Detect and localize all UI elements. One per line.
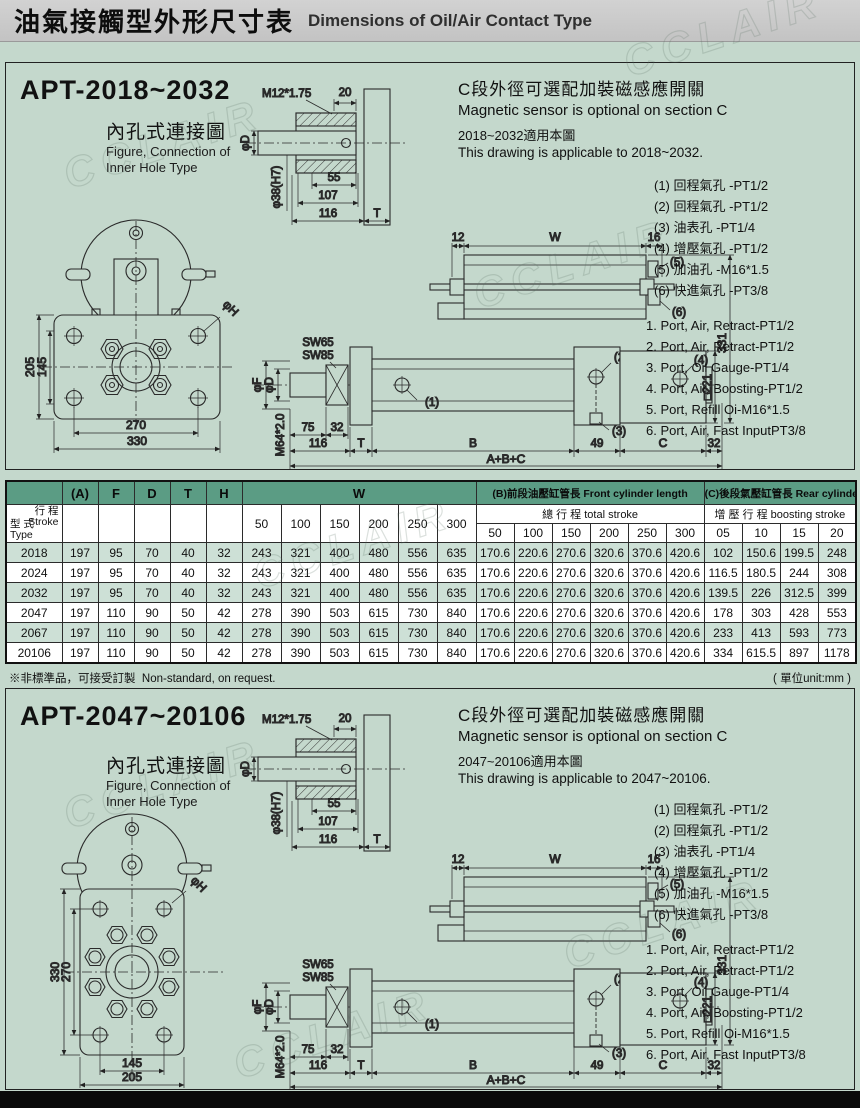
row-value-cell: 197 [62, 603, 98, 623]
model-title: APT-2047~20106 [20, 701, 246, 732]
corner-cell: 行 程Stroke 型 式Type [6, 505, 62, 543]
row-value-cell: 840 [437, 623, 476, 643]
port-en-5: 5. Port, Refill Oi-M16*1.5 [646, 1023, 806, 1044]
figure-title-en-2: Inner Hole Type [106, 160, 230, 176]
table-header-row-2: 行 程Stroke 型 式Type 50 100 150 200 250 300… [6, 505, 856, 524]
row-value-cell: 635 [437, 563, 476, 583]
c-col-15: 15 [780, 524, 818, 543]
port-en-2: 2. Port, Air, Retract-PT1/2 [646, 960, 806, 981]
row-value-cell: 278 [242, 643, 281, 664]
dim-t-label: T [373, 208, 380, 220]
row-value-cell: 220.6 [514, 603, 552, 623]
row-value-cell: 50 [170, 603, 206, 623]
row-value-cell: 480 [359, 563, 398, 583]
figure-title-en-1: Figure, Connection of [106, 778, 230, 794]
row-value-cell: 615 [359, 643, 398, 664]
row-value-cell: 170.6 [476, 603, 514, 623]
row-value-cell: 480 [359, 583, 398, 603]
figure-title-en-2: Inner Hole Type [106, 794, 230, 810]
row-value-cell: 320.6 [590, 543, 628, 563]
row-value-cell: 170.6 [476, 623, 514, 643]
flange-dim-h-outer: 205 [122, 1070, 142, 1084]
dim-w-label: W [549, 230, 561, 244]
c-subheader: 增 壓 行 程 boosting stroke [704, 505, 856, 524]
sensor-note-en: Magnetic sensor is optional on section C [458, 728, 848, 745]
dim-phi-h-label: φH [220, 297, 242, 319]
row-value-cell: 243 [242, 583, 281, 603]
table-row: 202419795704032243321400480556635170.622… [6, 563, 856, 583]
dim-32a-label: 32 [331, 1044, 344, 1056]
table-row: 20106197110905042278390503615730840170.6… [6, 643, 856, 664]
row-value-cell: 615.5 [742, 643, 780, 664]
b-col-100: 100 [514, 524, 552, 543]
col-b-group-cn: (B)前段油壓缸管長 [492, 488, 580, 500]
figure-title: 內孔式連接圖 Figure, Connection of Inner Hole … [106, 117, 230, 176]
col-b-group: (B)前段油壓缸管長 Front cylinder length [476, 481, 704, 505]
dim-116-label: 116 [319, 208, 337, 220]
page-bottom-bar [0, 1091, 860, 1108]
row-value-cell: 635 [437, 583, 476, 603]
w-col-150: 150 [320, 505, 359, 543]
page-title-cn: 油氣接觸型外形尺寸表 [14, 2, 294, 39]
row-value-cell: 320.6 [590, 563, 628, 583]
sw85-label: SW85 [302, 350, 333, 362]
table-body: 201819795704032243321400480556635170.622… [6, 543, 856, 664]
row-value-cell: 278 [242, 603, 281, 623]
dim-107-label: 107 [318, 816, 337, 828]
col-a: (A) [62, 481, 98, 505]
port-cn-5: (5) 加油孔 -M16*1.5 [654, 259, 769, 280]
port-cn-2: (2) 回程氣孔 -PT1/2 [654, 820, 769, 841]
dim-phi38-label: φ38(H7) [271, 166, 283, 209]
w-col-100: 100 [281, 505, 320, 543]
row-value-cell: 270.6 [552, 563, 590, 583]
row-value-cell: 40 [170, 563, 206, 583]
row-value-cell: 553 [818, 603, 856, 623]
callout-3: (3) [612, 426, 626, 438]
row-value-cell: 420.6 [666, 603, 704, 623]
row-value-cell: 370.6 [628, 643, 666, 664]
row-value-cell: 95 [98, 563, 134, 583]
dim-m12-label: M12*1.75 [262, 714, 311, 726]
row-value-cell: 270.6 [552, 623, 590, 643]
row-value-cell: 110 [98, 623, 134, 643]
dim-phi-f-label: φF [252, 1000, 264, 1014]
row-value-cell: 321 [281, 543, 320, 563]
row-value-cell: 1178 [818, 643, 856, 664]
row-value-cell: 400 [320, 543, 359, 563]
row-value-cell: 503 [320, 623, 359, 643]
row-value-cell: 197 [62, 623, 98, 643]
row-value-cell: 110 [98, 603, 134, 623]
dim-55-label: 55 [328, 172, 341, 184]
sensor-note-cn: C段外徑可選配加裝磁感應開關 [458, 701, 848, 726]
applicable-note-cn: 2018~2032適用本圖 [458, 125, 848, 144]
row-value-cell: 220.6 [514, 643, 552, 664]
row-value-cell: 32 [206, 563, 242, 583]
row-value-cell: 70 [134, 563, 170, 583]
col-t: T [170, 481, 206, 505]
row-value-cell: 220.6 [514, 543, 552, 563]
flange-dim-h-outer: 330 [127, 434, 147, 448]
row-value-cell: 503 [320, 643, 359, 664]
dim-12-label: 12 [452, 232, 465, 244]
dim-m64-label: M64*2.0 [275, 414, 287, 457]
figure-title-cn: 內孔式連接圖 [106, 117, 230, 144]
port-cn-3: (3) 油表孔 -PT1/4 [654, 217, 769, 238]
dimension-table-zone: (A) F D T H W (B)前段油壓缸管長 Front cylinder … [5, 480, 855, 686]
row-value-cell: 40 [170, 543, 206, 563]
row-value-cell: 244 [780, 563, 818, 583]
callout-1: (1) [425, 397, 439, 409]
section-apt-2018-2032: M12*1.75 20 φD φ38(H7) 55 107 116 T [5, 62, 855, 470]
row-value-cell: 139.5 [704, 583, 742, 603]
port-cn-2: (2) 回程氣孔 -PT1/2 [654, 196, 769, 217]
row-value-cell: 420.6 [666, 583, 704, 603]
corner-type: 型 式Type [10, 519, 34, 541]
port-en-3: 3. Port, Oil Gauge-PT1/4 [646, 981, 806, 1002]
port-en-6: 6. Port, Air, Fast InputPT3/8 [646, 420, 806, 441]
dim-m64-label: M64*2.0 [275, 1036, 287, 1079]
dim-b-label: B [469, 1058, 477, 1072]
port-cn-5: (5) 加油孔 -M16*1.5 [654, 883, 769, 904]
row-value-cell: 390 [281, 603, 320, 623]
dimension-table: (A) F D T H W (B)前段油壓缸管長 Front cylinder … [5, 480, 857, 664]
row-value-cell: 773 [818, 623, 856, 643]
port-list-en: 1. Port, Air, Retract-PT1/2 2. Port, Air… [646, 939, 806, 1065]
row-value-cell: 32 [206, 543, 242, 563]
col-h: H [206, 481, 242, 505]
row-value-cell: 320.6 [590, 623, 628, 643]
port-cn-4: (4) 增壓氣孔 -PT1/2 [654, 238, 769, 259]
row-type-cell: 20106 [6, 643, 62, 664]
row-value-cell: 220.6 [514, 623, 552, 643]
dim-55-label: 55 [328, 798, 341, 810]
table-row: 2067197110905042278390503615730840170.62… [6, 623, 856, 643]
port-cn-3: (3) 油表孔 -PT1/4 [654, 841, 769, 862]
row-value-cell: 840 [437, 603, 476, 623]
row-value-cell: 170.6 [476, 583, 514, 603]
row-value-cell: 321 [281, 563, 320, 583]
row-value-cell: 556 [398, 583, 437, 603]
row-value-cell: 42 [206, 623, 242, 643]
sensor-note-cn: C段外徑可選配加裝磁感應開關 [458, 75, 848, 100]
row-value-cell: 399 [818, 583, 856, 603]
row-value-cell: 42 [206, 643, 242, 664]
row-value-cell: 730 [398, 623, 437, 643]
row-value-cell: 420.6 [666, 623, 704, 643]
dim-b-label: B [469, 436, 477, 450]
b-col-50: 50 [476, 524, 514, 543]
row-value-cell: 90 [134, 603, 170, 623]
dim-phi38-label: φ38(H7) [271, 792, 283, 835]
w-col-200: 200 [359, 505, 398, 543]
b-col-150: 150 [552, 524, 590, 543]
dim-116b-label: 116 [309, 438, 327, 450]
callout-1: (1) [425, 1019, 439, 1031]
row-value-cell: 197 [62, 563, 98, 583]
row-value-cell: 390 [281, 623, 320, 643]
port-en-6: 6. Port, Air, Fast InputPT3/8 [646, 1044, 806, 1065]
b-col-300: 300 [666, 524, 704, 543]
row-value-cell: 370.6 [628, 563, 666, 583]
row-value-cell: 334 [704, 643, 742, 664]
row-value-cell: 420.6 [666, 543, 704, 563]
port-cn-1: (1) 回程氣孔 -PT1/2 [654, 799, 769, 820]
row-value-cell: 370.6 [628, 543, 666, 563]
row-value-cell: 226 [742, 583, 780, 603]
applicable-note-cn: 2047~20106適用本圖 [458, 751, 848, 770]
port-cn-4: (4) 增壓氣孔 -PT1/2 [654, 862, 769, 883]
sensor-note-en: Magnetic sensor is optional on section C [458, 102, 848, 119]
row-value-cell: 897 [780, 643, 818, 664]
row-value-cell: 270.6 [552, 603, 590, 623]
row-value-cell: 615 [359, 623, 398, 643]
row-type-cell: 2047 [6, 603, 62, 623]
row-value-cell: 50 [170, 643, 206, 664]
col-d: D [134, 481, 170, 505]
row-value-cell: 220.6 [514, 583, 552, 603]
row-value-cell: 413 [742, 623, 780, 643]
dim-12-label: 12 [452, 854, 465, 866]
col-c-group-cn: (C)後段氣壓缸管長 [705, 488, 793, 500]
b-col-250: 250 [628, 524, 666, 543]
port-en-1: 1. Port, Air, Retract-PT1/2 [646, 939, 806, 960]
port-cn-6: (6) 快進氣孔 -PT3/8 [654, 280, 769, 301]
row-value-cell: 480 [359, 543, 398, 563]
dim-49-label: 49 [591, 438, 604, 450]
row-value-cell: 248 [818, 543, 856, 563]
row-value-cell: 503 [320, 603, 359, 623]
inner-hole-detail-drawing: M12*1.75 20 φD φ38(H7) 55 107 116 T [240, 87, 408, 225]
row-value-cell: 42 [206, 603, 242, 623]
sw65-label: SW65 [302, 959, 333, 971]
row-value-cell: 116.5 [704, 563, 742, 583]
row-value-cell: 270.6 [552, 583, 590, 603]
dim-phi-h-label: φH [188, 873, 210, 895]
dim-phi-d-label: φD [240, 135, 252, 151]
dim-75-label: 75 [302, 422, 315, 434]
figure-title: 內孔式連接圖 Figure, Connection of Inner Hole … [106, 751, 230, 810]
dim-tb-label: T [357, 438, 364, 450]
row-value-cell: 312.5 [780, 583, 818, 603]
row-type-cell: 2018 [6, 543, 62, 563]
inner-hole-detail-drawing: M12*1.75 20 φD φ38(H7) 55 107 116 T [240, 713, 408, 851]
table-footnote: ※非標準品，可接受訂製 Non-standard, on request. ( … [5, 670, 855, 686]
row-value-cell: 170.6 [476, 643, 514, 664]
row-value-cell: 556 [398, 563, 437, 583]
row-value-cell: 70 [134, 583, 170, 603]
col-b-group-en: Front cylinder length [583, 488, 687, 500]
dim-m12-label: M12*1.75 [262, 88, 311, 100]
row-value-cell: 730 [398, 603, 437, 623]
applicable-note-en: This drawing is applicable to 2018~2032. [458, 145, 848, 160]
flange-front-view: 330 270 145 205 φH [48, 814, 226, 1088]
unit-note: ( 單位unit:mm ) [773, 670, 851, 686]
row-value-cell: 110 [98, 643, 134, 664]
dim-abc-label: A+B+C [487, 1073, 526, 1087]
row-value-cell: 370.6 [628, 603, 666, 623]
row-value-cell: 615 [359, 603, 398, 623]
section-apt-2047-20106: M12*1.75 20 φD φ38(H7) 55 107 116 T [5, 688, 855, 1090]
nonstandard-note: ※非標準品，可接受訂製 Non-standard, on request. [9, 670, 276, 686]
c-col-20: 20 [818, 524, 856, 543]
row-type-cell: 2024 [6, 563, 62, 583]
port-en-4: 4. Port, Air, Boosting-PT1/2 [646, 1002, 806, 1023]
row-value-cell: 90 [134, 643, 170, 664]
row-value-cell: 220.6 [514, 563, 552, 583]
row-value-cell: 233 [704, 623, 742, 643]
dim-abc-label: A+B+C [487, 452, 526, 466]
row-value-cell: 199.5 [780, 543, 818, 563]
row-value-cell: 370.6 [628, 623, 666, 643]
dim-107-label: 107 [318, 190, 337, 202]
row-value-cell: 370.6 [628, 583, 666, 603]
table-row: 2047197110905042278390503615730840170.62… [6, 603, 856, 623]
row-value-cell: 593 [780, 623, 818, 643]
w-col-300: 300 [437, 505, 476, 543]
table-row: 201819795704032243321400480556635170.622… [6, 543, 856, 563]
sw85-label: SW85 [302, 972, 333, 984]
row-value-cell: 170.6 [476, 563, 514, 583]
w-col-50: 50 [242, 505, 281, 543]
page-header: 油氣接觸型外形尺寸表 Dimensions of Oil/Air Contact… [0, 0, 860, 42]
col-f: F [98, 481, 134, 505]
port-en-5: 5. Port, Refill Oi-M16*1.5 [646, 399, 806, 420]
flange-dim-v-inner: 270 [59, 962, 73, 982]
dim-20-label: 20 [339, 87, 352, 99]
row-value-cell: 635 [437, 543, 476, 563]
b-subheader: 總 行 程 total stroke [476, 505, 704, 524]
flange-dim-h-inner: 270 [126, 418, 146, 432]
row-value-cell: 420.6 [666, 563, 704, 583]
row-value-cell: 320.6 [590, 603, 628, 623]
dim-phi-f-label: φF [252, 378, 264, 392]
row-value-cell: 270.6 [552, 543, 590, 563]
b-col-200: 200 [590, 524, 628, 543]
c-col-05: 05 [704, 524, 742, 543]
row-value-cell: 180.5 [742, 563, 780, 583]
model-title: APT-2018~2032 [20, 75, 230, 106]
row-value-cell: 50 [170, 623, 206, 643]
row-value-cell: 95 [98, 543, 134, 563]
col-c-group-en: Rear cylinder length [796, 488, 857, 500]
row-value-cell: 243 [242, 563, 281, 583]
dim-49-label: 49 [591, 1060, 604, 1072]
sensor-note: C段外徑可選配加裝磁感應開關 Magnetic sensor is option… [458, 701, 848, 786]
flange-dim-v-inner: 145 [35, 357, 49, 377]
row-value-cell: 102 [704, 543, 742, 563]
row-value-cell: 178 [704, 603, 742, 623]
row-value-cell: 428 [780, 603, 818, 623]
page-title-en: Dimensions of Oil/Air Contact Type [308, 11, 592, 31]
port-list-cn: (1) 回程氣孔 -PT1/2 (2) 回程氣孔 -PT1/2 (3) 油表孔 … [654, 175, 769, 301]
dim-32a-label: 32 [331, 422, 344, 434]
row-value-cell: 40 [170, 583, 206, 603]
port-en-1: 1. Port, Air, Retract-PT1/2 [646, 315, 806, 336]
figure-title-en-1: Figure, Connection of [106, 144, 230, 160]
dim-phi-d2-label: φD [264, 377, 276, 393]
row-value-cell: 150.6 [742, 543, 780, 563]
row-value-cell: 400 [320, 583, 359, 603]
row-value-cell: 320.6 [590, 643, 628, 664]
port-en-3: 3. Port, Oil Gauge-PT1/4 [646, 357, 806, 378]
dim-phi-d2-label: φD [264, 999, 276, 1015]
port-cn-6: (6) 快進氣孔 -PT3/8 [654, 904, 769, 925]
table-row: 203219795704032243321400480556635170.622… [6, 583, 856, 603]
port-list-en: 1. Port, Air, Retract-PT1/2 2. Port, Air… [646, 315, 806, 441]
dim-phi-d-label: φD [240, 761, 252, 777]
row-value-cell: 243 [242, 543, 281, 563]
dim-w-label: W [549, 852, 561, 866]
flange-dim-h-inner: 145 [122, 1056, 142, 1070]
dim-116-label: 116 [319, 834, 337, 846]
table-header-row-1: (A) F D T H W (B)前段油壓缸管長 Front cylinder … [6, 481, 856, 505]
port-en-2: 2. Port, Air, Retract-PT1/2 [646, 336, 806, 357]
row-value-cell: 320.6 [590, 583, 628, 603]
col-c-group: (C)後段氣壓缸管長 Rear cylinder length [704, 481, 856, 505]
row-value-cell: 730 [398, 643, 437, 664]
port-list-cn: (1) 回程氣孔 -PT1/2 (2) 回程氣孔 -PT1/2 (3) 油表孔 … [654, 799, 769, 925]
w-col-250: 250 [398, 505, 437, 543]
row-value-cell: 70 [134, 543, 170, 563]
sensor-note: C段外徑可選配加裝磁感應開關 Magnetic sensor is option… [458, 75, 848, 160]
row-type-cell: 2032 [6, 583, 62, 603]
col-w-group: W [242, 481, 476, 505]
applicable-note-en: This drawing is applicable to 2047~20106… [458, 771, 848, 786]
row-value-cell: 32 [206, 583, 242, 603]
row-value-cell: 278 [242, 623, 281, 643]
row-value-cell: 556 [398, 543, 437, 563]
row-value-cell: 197 [62, 583, 98, 603]
c-col-10: 10 [742, 524, 780, 543]
row-value-cell: 400 [320, 563, 359, 583]
callout-3: (3) [612, 1048, 626, 1060]
dim-20-label: 20 [339, 713, 352, 725]
row-value-cell: 270.6 [552, 643, 590, 664]
row-value-cell: 170.6 [476, 543, 514, 563]
figure-title-cn: 內孔式連接圖 [106, 751, 230, 778]
row-value-cell: 420.6 [666, 643, 704, 664]
dim-t-label: T [373, 834, 380, 846]
row-value-cell: 840 [437, 643, 476, 664]
flange-front-view: 205 145 270 330 φH [23, 220, 242, 453]
row-value-cell: 95 [98, 583, 134, 603]
port-cn-1: (1) 回程氣孔 -PT1/2 [654, 175, 769, 196]
row-value-cell: 90 [134, 623, 170, 643]
row-type-cell: 2067 [6, 623, 62, 643]
row-value-cell: 308 [818, 563, 856, 583]
dim-116b-label: 116 [309, 1060, 327, 1072]
row-value-cell: 303 [742, 603, 780, 623]
dim-75-label: 75 [302, 1044, 315, 1056]
row-value-cell: 321 [281, 583, 320, 603]
port-en-4: 4. Port, Air, Boosting-PT1/2 [646, 378, 806, 399]
row-value-cell: 197 [62, 543, 98, 563]
row-value-cell: 197 [62, 643, 98, 664]
sw65-label: SW65 [302, 337, 333, 349]
row-value-cell: 390 [281, 643, 320, 664]
dim-tb-label: T [357, 1060, 364, 1072]
